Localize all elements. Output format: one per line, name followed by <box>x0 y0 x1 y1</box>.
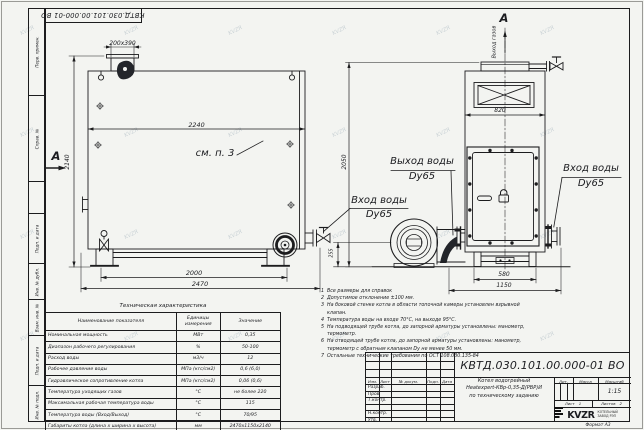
water-outlet-label: Выход воды <box>390 157 454 167</box>
row-unit: °С <box>177 387 221 397</box>
row-value: 12 <box>221 354 280 364</box>
note-item: 6На отводящей трубе котла, до запорной а… <box>317 338 531 352</box>
scale-value: 1:15 <box>598 383 631 400</box>
row-unit: МВт <box>177 331 221 341</box>
tech-table-header: Значение <box>221 313 280 330</box>
row-unit: °С <box>177 399 221 409</box>
row-name: Номинальная мощность <box>46 331 177 341</box>
tech-table: Наименование показателя Единицы измерени… <box>45 312 281 430</box>
mass-label: Масса <box>579 379 591 384</box>
row-value: 0,6 (6,0) <box>221 365 280 375</box>
company-logo: KVZR КОТЕЛЬНЫЙ ЗАВОД РЭП <box>554 407 631 423</box>
tech-table-header: Единицы измерения <box>177 313 221 330</box>
row-unit: МПа (кгс/см2) <box>177 365 221 375</box>
water-inlet-right-dn: Dy65 <box>578 179 604 189</box>
col-label-list: Лист <box>380 379 390 384</box>
row-label-prov: Пров. <box>368 392 381 397</box>
row-label-razrab: Разраб. <box>368 385 385 390</box>
note-item: 1Все размеры для справок <box>317 288 531 295</box>
row-label-utv: Утв. <box>368 418 377 423</box>
tech-table-title: Техническая характеристика <box>120 304 207 310</box>
table-row: Расход водым3/ч12 <box>46 354 280 365</box>
table-row: Номинальная мощностьМВт0,35 <box>46 331 280 342</box>
row-name: Температура уходящих газов <box>46 387 177 397</box>
width-dimension-2240: 2240 <box>188 122 204 128</box>
water-inlet-left-label: Вход воды <box>351 196 407 206</box>
width-dimension-820: 820 <box>494 108 505 114</box>
title-block-designation: КВТД.030.101.00.000-01 ВО <box>454 353 631 377</box>
table-row: Максимальная рабочая температура воды°С1… <box>46 399 280 410</box>
row-unit: °С <box>177 410 221 420</box>
note-item: 3На боковой стенке котла в области топоч… <box>317 302 531 316</box>
water-inlet-right-label: Вход воды <box>563 164 619 174</box>
col-label-izm: Изм. <box>368 379 377 384</box>
row-value: 70/95 <box>221 410 280 420</box>
logo-bars-icon <box>554 407 563 418</box>
gas-outlet-label: Выход газов <box>493 26 498 59</box>
table-row: Температура уходящих газов°Сне более 220 <box>46 387 280 398</box>
notes-list: 1Все размеры для справок 2Допустимое отк… <box>317 288 531 360</box>
product-name-line3: по техническому заданию <box>454 393 554 400</box>
row-unit: МПа (кгс/см2) <box>177 376 221 386</box>
base-dimension-2000: 2000 <box>186 270 202 276</box>
col-label-dokum: № докум. <box>399 379 418 384</box>
water-outlet-dn: Dy65 <box>409 172 435 182</box>
tech-table-header-row: Наименование показателя Единицы измерени… <box>46 313 280 331</box>
tech-table-header: Наименование показателя <box>46 313 177 330</box>
sheet-label: Лист <box>565 401 575 406</box>
base-dimension-2470: 2470 <box>192 281 208 287</box>
row-unit: м3/ч <box>177 354 221 364</box>
logo-text: KVZR <box>567 410 594 421</box>
col-label-podp: Подп. <box>427 379 439 384</box>
format-label: Формат А3 <box>566 423 630 428</box>
sheet-number-row: Лист 1 Листов 2 <box>554 400 631 407</box>
table-row: Диапазон рабочего регулирования%50-100 <box>46 342 280 353</box>
row-value: не более 220 <box>221 387 280 397</box>
lit-label: Лит. <box>559 379 568 384</box>
row-value: 115 <box>221 399 280 409</box>
see-note-callout: см. п. 3 <box>196 149 235 159</box>
drawing-sheet: KVZRKVZRKVZRKVZRKVZRKVZRKVZRKVZRKVZRKVZR… <box>0 0 644 430</box>
row-name: Максимальная рабочая температура воды <box>46 399 177 409</box>
sheets-label: Листов <box>601 401 616 406</box>
table-row: Температура воды (Вход/Выход)°С70/95 <box>46 410 280 421</box>
flue-dimension: 200x390 <box>109 41 135 47</box>
water-inlet-left-dn: Dy65 <box>366 210 392 220</box>
table-row: Габариты котла (длина х ширина х высота)… <box>46 421 280 430</box>
row-value: 0,35 <box>221 331 280 341</box>
row-label-tkontr: Т.контр. <box>368 398 387 403</box>
row-value: 2470х1150х2140 <box>221 421 280 430</box>
row-value: 50-100 <box>221 342 280 352</box>
sheet-cell: Лист 1 <box>554 400 592 407</box>
company-name: КОТЕЛЬНЫЙ ЗАВОД РЭП <box>598 411 618 419</box>
height-dimension-2140: 2140 <box>65 154 71 169</box>
note-item: 2Допустимое отклонение ±100 мм. <box>317 295 531 302</box>
note-item: 5На подводящей трубе котла, до запорной … <box>317 324 531 338</box>
sheets-value: 2 <box>620 401 622 406</box>
row-label-nkontr: Н.контр. <box>368 411 387 416</box>
col-label-data: Дата <box>442 379 452 384</box>
title-block: КВТД.030.101.00.000-01 ВО Изм. Лист № до… <box>365 352 630 422</box>
product-name-line1: Котел водогрейный <box>454 378 554 385</box>
row-value: 0,06 (0,6) <box>221 376 280 386</box>
row-name: Расход воды <box>46 354 177 364</box>
base-dimension-580: 580 <box>498 272 509 278</box>
row-name: Температура воды (Вход/Выход) <box>46 410 177 420</box>
table-row: Гидравлическое сопротивление котлаМПа (к… <box>46 376 280 387</box>
base-height-dimension-255: 255 <box>330 248 335 257</box>
row-name: Рабочее давление воды <box>46 365 177 375</box>
row-unit: % <box>177 342 221 352</box>
section-letter-left: А <box>52 151 61 163</box>
table-row: Рабочее давление водыМПа (кгс/см2)0,6 (6… <box>46 365 280 376</box>
sheet-value: 1 <box>579 401 581 406</box>
row-name: Гидравлическое сопротивление котла <box>46 376 177 386</box>
row-name: Диапазон рабочего регулирования <box>46 342 177 352</box>
product-name-line2: Heatexpert-КВр-0,35-Д(РВР)И <box>454 385 554 392</box>
sheets-cell: Листов 2 <box>592 400 631 407</box>
row-unit: мм <box>177 421 221 430</box>
note-item: 4Температура воды на входе 70°С, на выхо… <box>317 317 531 324</box>
row-name: Габариты котла (длина х ширина х высота) <box>46 421 177 430</box>
product-name: Котел водогрейный Heatexpert-КВр-0,35-Д(… <box>454 378 554 400</box>
section-letter-right: А <box>500 13 509 25</box>
height-dimension-2050: 2050 <box>342 154 348 169</box>
